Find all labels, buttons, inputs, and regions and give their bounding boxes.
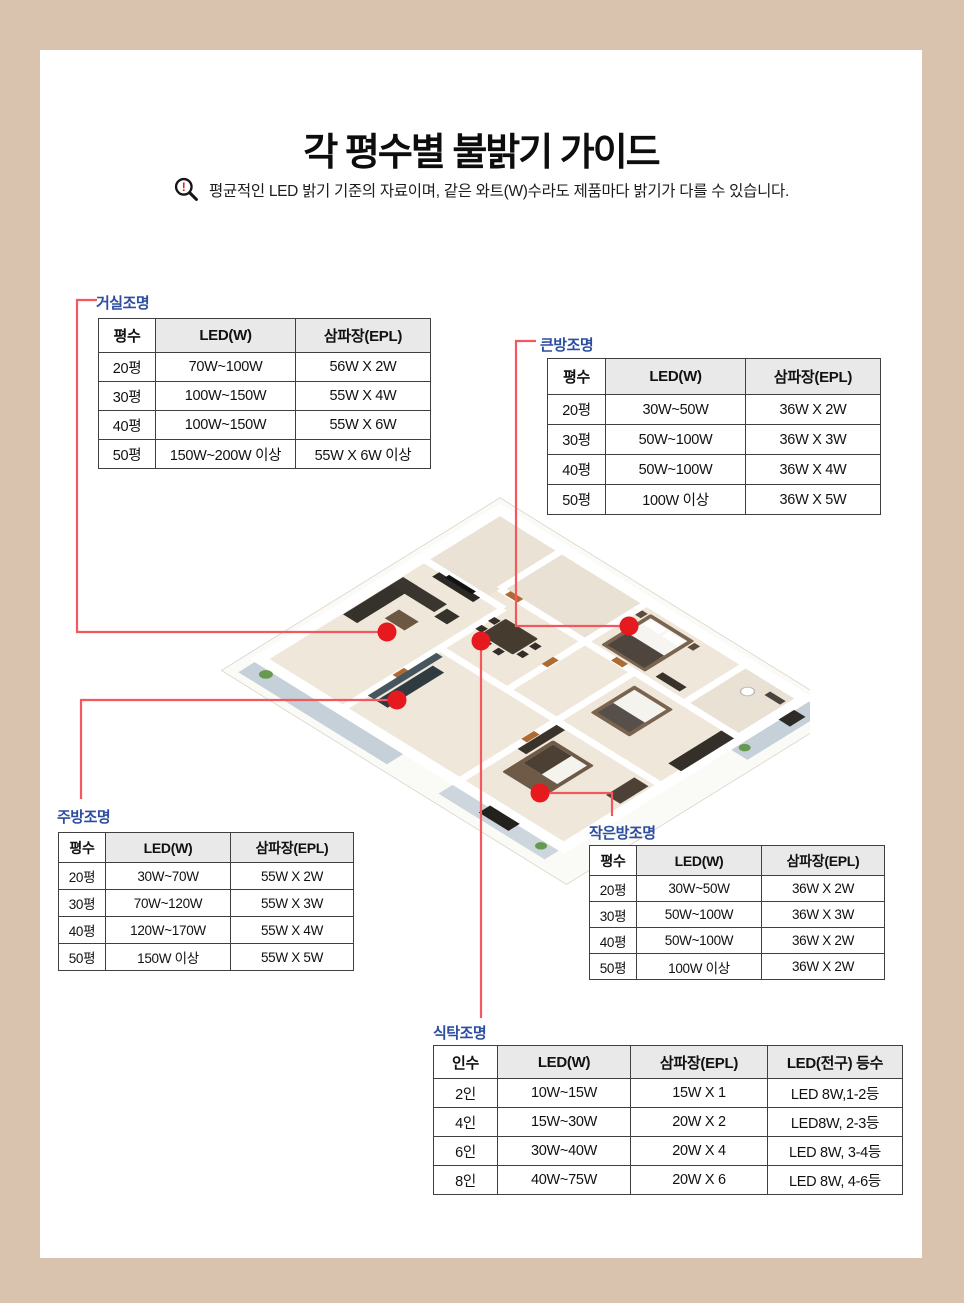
column-header: LED(W)	[606, 359, 746, 395]
big-room-lighting-table: 평수 LED(W) 삼파장(EPL) 20평 30W~50W 36W X 2W …	[547, 358, 881, 515]
table-cell: 40평	[59, 917, 106, 944]
table-row: 20평 30W~50W 36W X 2W	[590, 876, 885, 902]
table-header-row: 평수 LED(W) 삼파장(EPL)	[590, 846, 885, 876]
table-cell: 20W X 6	[631, 1166, 768, 1195]
table-header-row: 평수 LED(W) 삼파장(EPL)	[548, 359, 881, 395]
label-small-room-lighting: 작은방조명	[589, 822, 656, 843]
table-cell: 36W X 2W	[762, 876, 885, 902]
table-cell: LED 8W,1-2등	[768, 1079, 903, 1108]
table-row: 30평 50W~100W 36W X 3W	[590, 902, 885, 928]
column-header: 삼파장(EPL)	[296, 319, 431, 353]
table-row: 40평 50W~100W 36W X 4W	[548, 455, 881, 485]
table-cell: 100W 이상	[637, 954, 762, 980]
infographic-page: 각 평수별 불밝기 가이드 ! 평균적인 LED 밝기 기준의 자료이며, 같은…	[0, 0, 964, 1303]
table-row: 50평 100W 이상 36W X 2W	[590, 954, 885, 980]
table-cell: 30W~50W	[637, 876, 762, 902]
table-cell: 15W~30W	[498, 1108, 631, 1137]
table-cell: 30평	[590, 902, 637, 928]
table-cell: 30평	[548, 425, 606, 455]
table-cell: 36W X 4W	[746, 455, 881, 485]
table-cell: 6인	[434, 1137, 498, 1166]
table-row: 20평 30W~50W 36W X 2W	[548, 395, 881, 425]
table-cell: 70W~100W	[156, 353, 296, 382]
column-header: 평수	[548, 359, 606, 395]
table-cell: 50평	[59, 944, 106, 971]
table-cell: 2인	[434, 1079, 498, 1108]
table-cell: 8인	[434, 1166, 498, 1195]
notice-row: ! 평균적인 LED 밝기 기준의 자료이며, 같은 와트(W)수라도 제품마다…	[40, 176, 922, 203]
table-cell: 40W~75W	[498, 1166, 631, 1195]
table-cell: 50W~100W	[637, 902, 762, 928]
table-cell: 36W X 2W	[746, 395, 881, 425]
table-row: 20평 70W~100W 56W X 2W	[99, 353, 431, 382]
table-row: 20평 30W~70W 55W X 2W	[59, 863, 354, 890]
table-cell: 15W X 1	[631, 1079, 768, 1108]
label-kitchen-lighting: 주방조명	[57, 806, 110, 827]
table-header-row: 평수 LED(W) 삼파장(EPL)	[99, 319, 431, 353]
column-header: 평수	[99, 319, 156, 353]
table-row: 30평 50W~100W 36W X 3W	[548, 425, 881, 455]
table-cell: 20평	[548, 395, 606, 425]
table-cell: 36W X 3W	[762, 902, 885, 928]
table-cell: 4인	[434, 1108, 498, 1137]
table-cell: 100W~150W	[156, 411, 296, 440]
column-header: 평수	[59, 833, 106, 863]
dining-lighting-panel: 인수 LED(W) 삼파장(EPL) LED(전구) 등수 2인 10W~15W…	[433, 1045, 903, 1195]
table-row: 30평 100W~150W 55W X 4W	[99, 382, 431, 411]
living-lighting-table: 평수 LED(W) 삼파장(EPL) 20평 70W~100W 56W X 2W…	[98, 318, 431, 469]
table-cell: 20평	[59, 863, 106, 890]
table-row: 50평 150W 이상 55W X 5W	[59, 944, 354, 971]
table-cell: 30W~40W	[498, 1137, 631, 1166]
table-cell: LED8W, 2-3등	[768, 1108, 903, 1137]
table-row: 30평 70W~120W 55W X 3W	[59, 890, 354, 917]
label-living-lighting: 거실조명	[96, 292, 149, 313]
table-cell: 55W X 4W	[231, 917, 354, 944]
table-row: 6인 30W~40W 20W X 4 LED 8W, 3-4등	[434, 1137, 903, 1166]
column-header: 삼파장(EPL)	[231, 833, 354, 863]
table-row: 40평 100W~150W 55W X 6W	[99, 411, 431, 440]
column-header: LED(W)	[637, 846, 762, 876]
table-header-row: 평수 LED(W) 삼파장(EPL)	[59, 833, 354, 863]
table-cell: 20평	[590, 876, 637, 902]
table-cell: 30W~70W	[106, 863, 231, 890]
table-row: 8인 40W~75W 20W X 6 LED 8W, 4-6등	[434, 1166, 903, 1195]
table-row: 50평 100W 이상 36W X 5W	[548, 485, 881, 515]
table-row: 40평 120W~170W 55W X 4W	[59, 917, 354, 944]
table-cell: 100W~150W	[156, 382, 296, 411]
table-header-row: 인수 LED(W) 삼파장(EPL) LED(전구) 등수	[434, 1046, 903, 1079]
table-cell: 36W X 3W	[746, 425, 881, 455]
living-lighting-panel: 평수 LED(W) 삼파장(EPL) 20평 70W~100W 56W X 2W…	[98, 318, 431, 469]
column-header: LED(전구) 등수	[768, 1046, 903, 1079]
table-cell: 36W X 2W	[762, 928, 885, 954]
table-row: 2인 10W~15W 15W X 1 LED 8W,1-2등	[434, 1079, 903, 1108]
column-header: 삼파장(EPL)	[746, 359, 881, 395]
page-title: 각 평수별 불밝기 가이드	[40, 121, 922, 176]
table-cell: 20W X 4	[631, 1137, 768, 1166]
table-cell: 56W X 2W	[296, 353, 431, 382]
table-cell: 150W~200W 이상	[156, 440, 296, 469]
label-dining-lighting: 식탁조명	[433, 1022, 486, 1043]
kitchen-lighting-table: 평수 LED(W) 삼파장(EPL) 20평 30W~70W 55W X 2W …	[58, 832, 354, 971]
column-header: 평수	[590, 846, 637, 876]
column-header: LED(W)	[498, 1046, 631, 1079]
table-cell: 40평	[590, 928, 637, 954]
table-cell: 30평	[99, 382, 156, 411]
table-row: 4인 15W~30W 20W X 2 LED8W, 2-3등	[434, 1108, 903, 1137]
column-header: LED(W)	[156, 319, 296, 353]
table-cell: LED 8W, 3-4등	[768, 1137, 903, 1166]
table-row: 50평 150W~200W 이상 55W X 6W 이상	[99, 440, 431, 469]
table-cell: 55W X 6W 이상	[296, 440, 431, 469]
table-cell: 70W~120W	[106, 890, 231, 917]
table-cell: 55W X 6W	[296, 411, 431, 440]
table-cell: 36W X 2W	[762, 954, 885, 980]
table-cell: 55W X 2W	[231, 863, 354, 890]
label-big-room-lighting: 큰방조명	[540, 334, 593, 355]
small-room-lighting-panel: 평수 LED(W) 삼파장(EPL) 20평 30W~50W 36W X 2W …	[589, 845, 885, 980]
table-cell: 20W X 2	[631, 1108, 768, 1137]
table-cell: 40평	[548, 455, 606, 485]
table-cell: 55W X 3W	[231, 890, 354, 917]
table-cell: 55W X 5W	[231, 944, 354, 971]
table-row: 40평 50W~100W 36W X 2W	[590, 928, 885, 954]
column-header: LED(W)	[106, 833, 231, 863]
table-cell: 10W~15W	[498, 1079, 631, 1108]
table-cell: 50W~100W	[606, 425, 746, 455]
dining-lighting-table: 인수 LED(W) 삼파장(EPL) LED(전구) 등수 2인 10W~15W…	[433, 1045, 903, 1195]
notice-text: 평균적인 LED 밝기 기준의 자료이며, 같은 와트(W)수라도 제품마다 밝…	[209, 179, 789, 201]
column-header: 인수	[434, 1046, 498, 1079]
table-cell: LED 8W, 4-6등	[768, 1166, 903, 1195]
kitchen-lighting-panel: 평수 LED(W) 삼파장(EPL) 20평 30W~70W 55W X 2W …	[58, 832, 354, 971]
table-cell: 50W~100W	[637, 928, 762, 954]
small-room-lighting-table: 평수 LED(W) 삼파장(EPL) 20평 30W~50W 36W X 2W …	[589, 845, 885, 980]
svg-text:!: !	[182, 180, 186, 194]
table-cell: 36W X 5W	[746, 485, 881, 515]
table-cell: 20평	[99, 353, 156, 382]
column-header: 삼파장(EPL)	[762, 846, 885, 876]
column-header: 삼파장(EPL)	[631, 1046, 768, 1079]
table-cell: 30평	[59, 890, 106, 917]
big-room-lighting-panel: 평수 LED(W) 삼파장(EPL) 20평 30W~50W 36W X 2W …	[547, 358, 881, 515]
table-cell: 55W X 4W	[296, 382, 431, 411]
table-cell: 150W 이상	[106, 944, 231, 971]
table-cell: 120W~170W	[106, 917, 231, 944]
table-cell: 100W 이상	[606, 485, 746, 515]
table-cell: 50평	[590, 954, 637, 980]
table-cell: 30W~50W	[606, 395, 746, 425]
table-cell: 50평	[99, 440, 156, 469]
magnifier-exclamation-icon: !	[173, 176, 200, 203]
table-cell: 50평	[548, 485, 606, 515]
table-cell: 40평	[99, 411, 156, 440]
table-cell: 50W~100W	[606, 455, 746, 485]
